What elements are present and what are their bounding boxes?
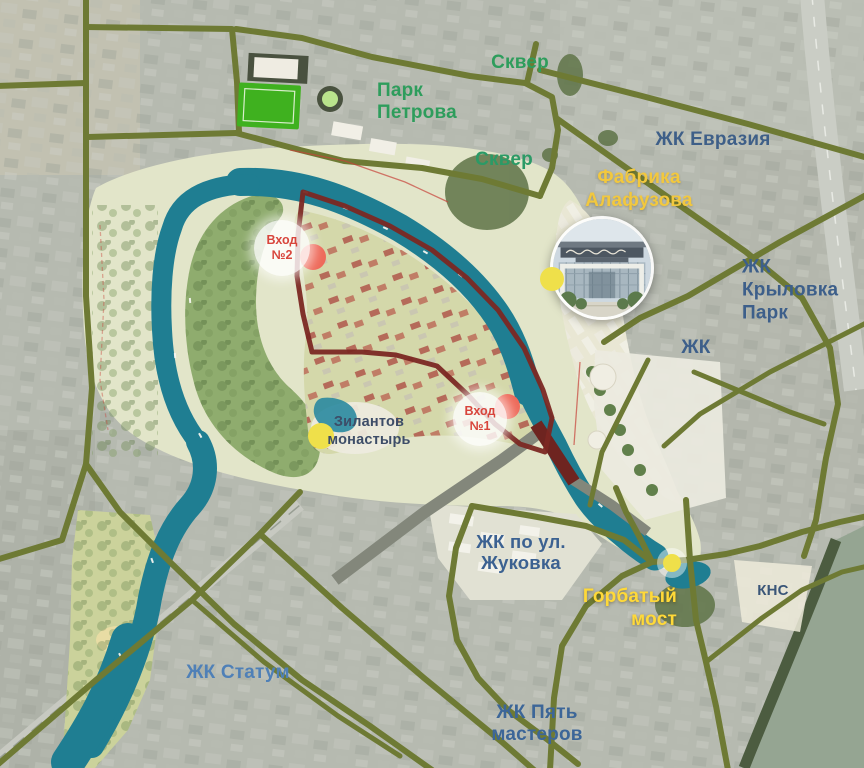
map-label-kns: КНС [757, 582, 788, 600]
building-photo-illustration [553, 219, 651, 317]
map-label-zk-pyat-masterov: ЖК Пять мастеров [491, 702, 582, 746]
entrance-2-label: Вход №2 [267, 233, 298, 263]
map-label-zk-statum: ЖК Статум [186, 662, 290, 684]
map-label-zilantov-monastery: Зилантов монастырь [327, 413, 410, 449]
gorbaty-most-marker-dot[interactable] [663, 554, 681, 572]
park-petrova-marker-dot [322, 91, 338, 107]
map-canvas[interactable]: Вход №2 Вход №1 Сквер Парк Петрова Сквер… [0, 0, 864, 768]
entrance-1-marker[interactable]: Вход №1 [453, 392, 507, 446]
map-label-skver-north: Сквер [491, 52, 549, 74]
entrance-2-marker[interactable]: Вход №2 [254, 220, 310, 276]
map-label-gorbaty-most: Горбатый мост [583, 585, 677, 631]
map-label-zk-krylovka-park: ЖК Крыловка Парк [742, 256, 838, 325]
map-label-fabrika-alafuzova: Фабрика Алафузова [585, 166, 692, 212]
map-label-zk-zhukovka: ЖК по ул. Жуковка [476, 531, 566, 573]
map-label-zk-evraziya: ЖК Евразия [655, 129, 770, 151]
fabrika-marker-dot[interactable] [540, 267, 564, 291]
map-label-skver-south: Сквер [475, 149, 533, 171]
map-label-zk: ЖК [681, 337, 710, 359]
fabrika-alafuzova-photo-inset[interactable] [550, 216, 654, 320]
map-label-park-petrova: Парк Петрова [377, 80, 457, 124]
entrance-1-label: Вход №1 [465, 404, 496, 434]
park-petrova-marker-ring[interactable] [317, 86, 343, 112]
